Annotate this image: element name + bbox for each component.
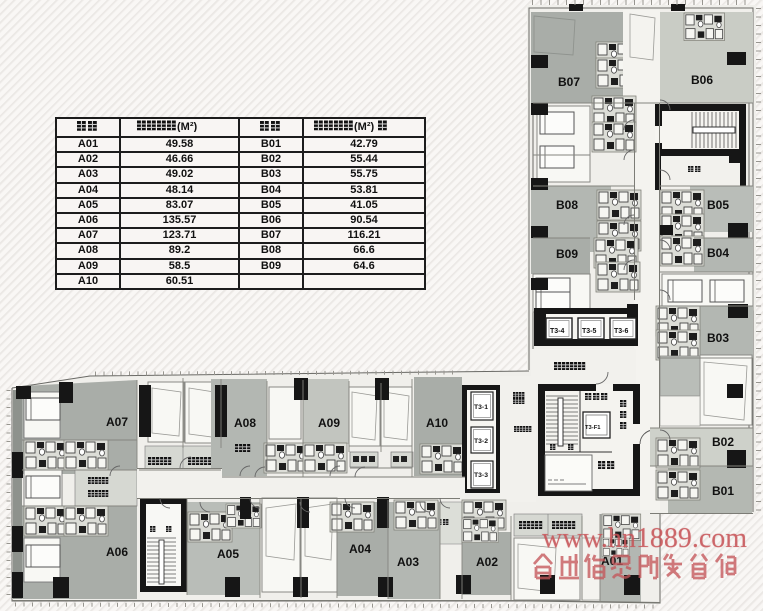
svg-text:T3-1: T3-1: [474, 404, 488, 411]
svg-text:(M²): (M²): [177, 121, 197, 132]
svg-text:T3-F1: T3-F1: [585, 425, 601, 431]
svg-text:B03: B03: [707, 331, 729, 345]
svg-text:B05: B05: [707, 198, 729, 212]
svg-text:(M²): (M²): [354, 121, 374, 132]
svg-text:B09: B09: [556, 247, 578, 261]
svg-text:T3-3: T3-3: [474, 472, 488, 479]
svg-text:T3-2: T3-2: [474, 438, 488, 445]
svg-text:A05: A05: [217, 547, 239, 561]
svg-text:B06: B06: [691, 73, 713, 87]
svg-text:A04: A04: [349, 542, 371, 556]
svg-text:T3-4: T3-4: [550, 328, 565, 335]
svg-text:B08: B08: [556, 198, 578, 212]
svg-text:A09: A09: [318, 416, 340, 430]
svg-text:B07: B07: [558, 75, 580, 89]
svg-text:A07: A07: [106, 415, 128, 429]
svg-text:T3-6: T3-6: [614, 328, 629, 335]
svg-text:B01: B01: [712, 484, 734, 498]
svg-text:A03: A03: [397, 555, 419, 569]
svg-text:B04: B04: [707, 246, 729, 260]
svg-text:B02: B02: [712, 435, 734, 449]
svg-text:A08: A08: [234, 416, 256, 430]
svg-text:A06: A06: [106, 545, 128, 559]
svg-text:A02: A02: [476, 555, 498, 569]
svg-text:A10: A10: [426, 416, 448, 430]
svg-text:T3-5: T3-5: [582, 328, 597, 335]
